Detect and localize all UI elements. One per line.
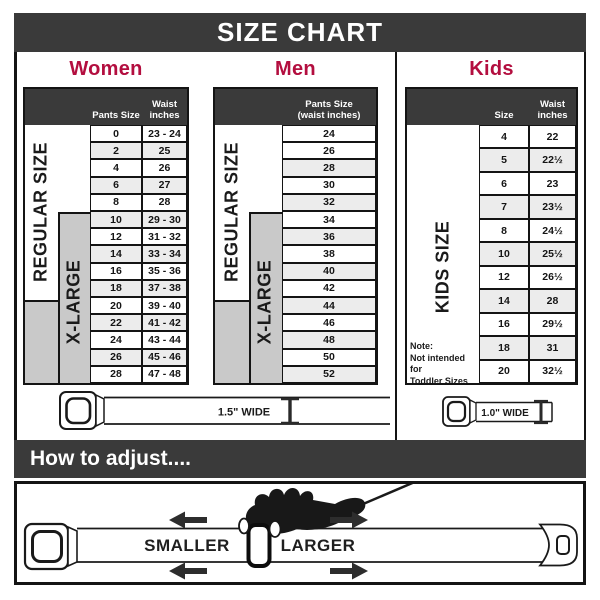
- pants-size-cell: 42: [282, 280, 376, 297]
- pants-size-cell: 48: [282, 331, 376, 348]
- kids-table-rows: 4 22 5 22½ 6 23 7 23½ 8 24½: [479, 125, 576, 383]
- women-waist-header: Waist inches: [142, 99, 187, 121]
- table-row: 6 27: [90, 177, 187, 194]
- kid-size-cell: 8: [479, 219, 529, 242]
- waist-inches-cell: 39 - 40: [142, 297, 187, 314]
- width-measure-icon: [281, 399, 299, 423]
- left-frame-line: [14, 52, 17, 440]
- table-row: 36: [282, 228, 376, 245]
- table-row: 12 26½: [479, 266, 576, 289]
- pants-size-cell: 50: [282, 349, 376, 366]
- table-row: 18 31: [479, 336, 576, 359]
- waist-inches-cell: 31: [529, 336, 576, 359]
- kid-size-cell: 12: [479, 266, 529, 289]
- waist-inches-cell: 28: [142, 194, 187, 211]
- pants-size-cell: 16: [90, 263, 142, 280]
- table-row: 6 23: [479, 172, 576, 195]
- waist-inches-cell: 32½: [529, 360, 576, 383]
- fingertip: [239, 519, 249, 534]
- table-row: 10 29 - 30: [90, 211, 187, 228]
- table-row: 10 25½: [479, 242, 576, 265]
- pants-size-cell: 52: [282, 366, 376, 383]
- table-row: 0 23 - 24: [90, 125, 187, 142]
- pants-size-cell: 24: [282, 125, 376, 142]
- page-title: SIZE CHART: [217, 17, 383, 48]
- women-xlarge-band-lower: [25, 300, 58, 383]
- how-to-adjust-bar: How to adjust....: [14, 440, 586, 478]
- waist-inches-cell: 23 - 24: [142, 125, 187, 142]
- table-row: 38: [282, 245, 376, 262]
- table-row: 16 29½: [479, 313, 576, 336]
- table-row: 2 25: [90, 142, 187, 159]
- kid-size-cell: 16: [479, 313, 529, 336]
- pants-size-cell: 0: [90, 125, 142, 142]
- title-bar: SIZE CHART: [14, 13, 586, 52]
- men-table-header: Pants Size (waist inches): [215, 89, 376, 125]
- kids-size-label: KIDS SIZE: [433, 221, 454, 314]
- pants-size-cell: 28: [90, 366, 142, 383]
- pants-size-cell: 28: [282, 159, 376, 176]
- pants-size-cell: 2: [90, 142, 142, 159]
- how-to-adjust-heading: How to adjust....: [30, 447, 191, 471]
- kid-size-cell: 4: [479, 125, 529, 148]
- pants-size-cell: 32: [282, 194, 376, 211]
- waist-inches-cell: 31 - 32: [142, 228, 187, 245]
- table-row: 26 45 - 46: [90, 349, 187, 366]
- table-row: 4 22: [479, 125, 576, 148]
- kids-size-header: Size: [479, 110, 529, 121]
- fingertip: [270, 521, 281, 537]
- arrow-right-icon: [330, 563, 368, 580]
- kids-table-header: Size Waist inches: [407, 89, 576, 125]
- waist-inches-cell: 22: [529, 125, 576, 148]
- adult-belt-illustration: 1.5" WIDE: [20, 388, 392, 436]
- width-measure-icon: [534, 401, 548, 423]
- table-row: 42: [282, 280, 376, 297]
- belt-buckle-icon: [25, 524, 77, 569]
- table-row: 28: [282, 159, 376, 176]
- kids-note: Note: Not intended for Toddler Sizes (T): [410, 341, 477, 383]
- table-row: 20 39 - 40: [90, 297, 187, 314]
- kid-size-cell: 14: [479, 289, 529, 312]
- waist-inches-cell: 29 - 30: [142, 211, 187, 228]
- table-row: 48: [282, 331, 376, 348]
- table-row: 5 22½: [479, 148, 576, 171]
- pants-size-cell: 30: [282, 177, 376, 194]
- men-size-table: Pants Size (waist inches) REGULAR SIZE X…: [213, 87, 378, 385]
- table-row: 22 41 - 42: [90, 314, 187, 331]
- table-row: 28 47 - 48: [90, 366, 187, 383]
- table-row: 7 23½: [479, 195, 576, 218]
- arrow-left-icon: [169, 563, 207, 580]
- women-pants-size-header: Pants Size: [90, 110, 142, 121]
- waist-inches-cell: 26½: [529, 266, 576, 289]
- adjust-illustration: SMALLER LARGER: [17, 484, 583, 582]
- waist-inches-cell: 35 - 36: [142, 263, 187, 280]
- men-regular-size-label: REGULAR SIZE: [222, 142, 243, 282]
- table-row: 4 26: [90, 159, 187, 176]
- table-row: 44: [282, 297, 376, 314]
- table-row: 18 37 - 38: [90, 280, 187, 297]
- waist-inches-cell: 23½: [529, 195, 576, 218]
- waist-inches-cell: 27: [142, 177, 187, 194]
- table-row: 50: [282, 349, 376, 366]
- adjust-illustration-panel: SMALLER LARGER: [14, 481, 586, 585]
- pants-size-cell: 12: [90, 228, 142, 245]
- kid-size-cell: 5: [479, 148, 529, 171]
- larger-label: LARGER: [281, 536, 356, 555]
- arrow-left-icon: [169, 512, 207, 529]
- pants-size-cell: 26: [90, 349, 142, 366]
- men-size-bands: REGULAR SIZE X-LARGE: [215, 125, 282, 383]
- table-row: 8 28: [90, 194, 187, 211]
- women-size-bands: REGULAR SIZE X-LARGE: [25, 125, 90, 383]
- pants-size-cell: 24: [90, 331, 142, 348]
- kids-belt-width-label: 1.0" WIDE: [481, 408, 529, 419]
- pants-size-cell: 18: [90, 280, 142, 297]
- kid-size-cell: 18: [479, 336, 529, 359]
- table-row: 26: [282, 142, 376, 159]
- table-row: 52: [282, 366, 376, 383]
- pants-size-cell: 6: [90, 177, 142, 194]
- kids-belt-illustration: 1.0" WIDE: [432, 392, 558, 432]
- belt-tip-slot: [557, 536, 569, 554]
- kids-size-band: KIDS SIZE Note: Not intended for Toddler…: [407, 125, 479, 383]
- table-row: 24: [282, 125, 376, 142]
- kids-section-heading: Kids: [405, 56, 578, 82]
- waist-inches-cell: 37 - 38: [142, 280, 187, 297]
- pants-size-cell: 14: [90, 245, 142, 262]
- waist-inches-cell: 47 - 48: [142, 366, 187, 383]
- women-size-table: Pants Size Waist inches REGULAR SIZE X-L…: [23, 87, 189, 385]
- table-row: 12 31 - 32: [90, 228, 187, 245]
- pants-size-cell: 46: [282, 314, 376, 331]
- pants-size-cell: 10: [90, 211, 142, 228]
- men-xlarge-label: X-LARGE: [255, 260, 276, 345]
- women-section-heading: Women: [23, 56, 189, 82]
- table-row: 8 24½: [479, 219, 576, 242]
- pants-size-cell: 20: [90, 297, 142, 314]
- table-row: 16 35 - 36: [90, 263, 187, 280]
- table-row: 30: [282, 177, 376, 194]
- men-pants-size-header: Pants Size (waist inches): [282, 99, 376, 121]
- table-row: 32: [282, 194, 376, 211]
- belt-buckle-icon: [443, 397, 476, 426]
- kid-size-cell: 6: [479, 172, 529, 195]
- men-table-rows: 24 26 28 30 32 34 36: [282, 125, 376, 383]
- section-divider-line: [395, 52, 398, 440]
- waist-inches-cell: 28: [529, 289, 576, 312]
- waist-inches-cell: 22½: [529, 148, 576, 171]
- table-row: 14 28: [479, 289, 576, 312]
- pants-size-cell: 38: [282, 245, 376, 262]
- pants-size-cell: 40: [282, 263, 376, 280]
- men-section-heading: Men: [213, 56, 378, 82]
- women-table-header: Pants Size Waist inches: [25, 89, 187, 125]
- waist-inches-cell: 33 - 34: [142, 245, 187, 262]
- women-xlarge-label: X-LARGE: [64, 260, 85, 345]
- kid-size-cell: 20: [479, 360, 529, 383]
- waist-inches-cell: 45 - 46: [142, 349, 187, 366]
- waist-inches-cell: 25: [142, 142, 187, 159]
- kids-waist-header: Waist inches: [529, 99, 576, 121]
- pants-size-cell: 22: [90, 314, 142, 331]
- waist-inches-cell: 26: [142, 159, 187, 176]
- pants-size-cell: 4: [90, 159, 142, 176]
- belt-buckle-icon: [60, 392, 104, 429]
- pants-size-cell: 36: [282, 228, 376, 245]
- waist-inches-cell: 24½: [529, 219, 576, 242]
- pants-size-cell: 26: [282, 142, 376, 159]
- kid-size-cell: 7: [479, 195, 529, 218]
- waist-inches-cell: 23: [529, 172, 576, 195]
- waist-inches-cell: 29½: [529, 313, 576, 336]
- right-frame-line: [584, 52, 587, 440]
- table-row: 40: [282, 263, 376, 280]
- belt-slider: [249, 525, 270, 566]
- smaller-label: SMALLER: [144, 536, 230, 555]
- waist-inches-cell: 25½: [529, 242, 576, 265]
- men-xlarge-band-lower: [215, 300, 249, 383]
- waist-inches-cell: 43 - 44: [142, 331, 187, 348]
- table-row: 24 43 - 44: [90, 331, 187, 348]
- kids-size-table: Size Waist inches KIDS SIZE Note: Not in…: [405, 87, 578, 385]
- pants-size-cell: 34: [282, 211, 376, 228]
- table-row: 20 32½: [479, 360, 576, 383]
- women-regular-size-label: REGULAR SIZE: [31, 142, 52, 282]
- adult-belt-width-label: 1.5" WIDE: [218, 407, 270, 419]
- table-row: 34: [282, 211, 376, 228]
- table-row: 14 33 - 34: [90, 245, 187, 262]
- waist-inches-cell: 41 - 42: [142, 314, 187, 331]
- pants-size-cell: 8: [90, 194, 142, 211]
- pants-size-cell: 44: [282, 297, 376, 314]
- table-row: 46: [282, 314, 376, 331]
- kid-size-cell: 10: [479, 242, 529, 265]
- women-table-rows: 0 23 - 24 2 25 4 26 6 27 8 28: [90, 125, 187, 383]
